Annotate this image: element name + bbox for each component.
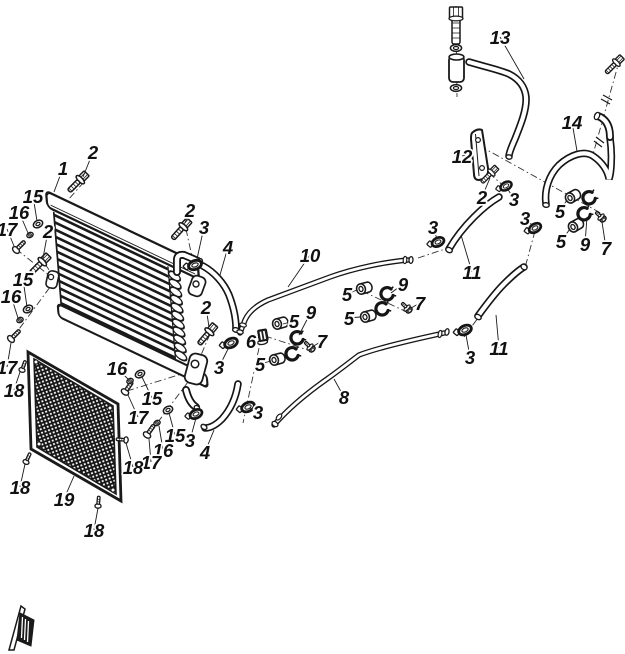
callout-label-2-10: 2 (184, 200, 196, 221)
callout-label-6-17: 6 (246, 331, 257, 352)
callout-label-16-7: 16 (1, 286, 22, 307)
banjo-washer-lower (450, 85, 461, 92)
callout-label-5-45: 5 (555, 201, 566, 222)
callout-label-1-0: 1 (58, 158, 68, 179)
callout-label-11-50: 11 (462, 262, 481, 283)
callout-label-18-9: 18 (4, 380, 25, 401)
callout-label-3-44: 3 (520, 208, 531, 229)
callout-label-18-36: 18 (10, 477, 31, 498)
exploded-parts-diagram: 1215161721516171823410295675359758334161… (0, 0, 625, 654)
callout-label-4-12: 4 (222, 237, 233, 258)
banjo-washer-upper (450, 45, 461, 52)
callout-label-8-25: 8 (339, 387, 350, 408)
callout-label-18-35: 18 (123, 457, 144, 478)
callout-label-3-27: 3 (185, 430, 196, 451)
callout-label-5-24: 5 (344, 308, 355, 329)
callout-label-13-39: 13 (490, 27, 511, 48)
callout-label-10-13: 10 (300, 245, 321, 266)
callout-label-14-40: 14 (562, 112, 583, 133)
callout-label-16-29: 16 (107, 358, 128, 379)
callout-label-9-15: 9 (306, 302, 317, 323)
callout-label-7-23: 7 (415, 293, 427, 314)
callout-label-17-4: 17 (0, 219, 19, 240)
callout-label-3-26: 3 (253, 402, 264, 423)
callout-label-3-49: 3 (428, 217, 439, 238)
callout-label-12-41: 12 (452, 146, 473, 167)
callout-label-18-38: 18 (84, 520, 105, 541)
callout-label-2-42: 2 (476, 187, 488, 208)
callout-label-5-46: 5 (556, 231, 567, 252)
callout-label-5-21: 5 (342, 284, 353, 305)
callout-label-15-30: 15 (142, 388, 163, 409)
callout-label-7-18: 7 (317, 331, 329, 352)
callout-label-17-8: 17 (0, 357, 19, 378)
callout-label-17-31: 17 (128, 407, 150, 428)
callout-label-3-43: 3 (509, 189, 520, 210)
callout-label-11-51: 11 (489, 338, 508, 359)
callout-label-3-11: 3 (199, 217, 210, 238)
callout-label-19-37: 19 (54, 489, 75, 510)
callout-label-5-19: 5 (255, 354, 266, 375)
callout-label-2-14: 2 (200, 297, 212, 318)
callout-label-9-47: 9 (580, 234, 591, 255)
callout-label-7-48: 7 (601, 238, 613, 259)
callout-label-2-1: 2 (87, 142, 99, 163)
callout-label-9-22: 9 (398, 274, 409, 295)
callout-label-4-28: 4 (199, 442, 210, 463)
callout-label-2-5: 2 (42, 221, 54, 242)
callout-label-17-34: 17 (141, 452, 163, 473)
callout-label-3-52: 3 (465, 347, 476, 368)
parts-diagram-page: 1215161721516171823410295675359758334161… (0, 0, 625, 654)
callout-label-5-16: 5 (289, 311, 300, 332)
callout-label-3-20: 3 (214, 357, 225, 378)
